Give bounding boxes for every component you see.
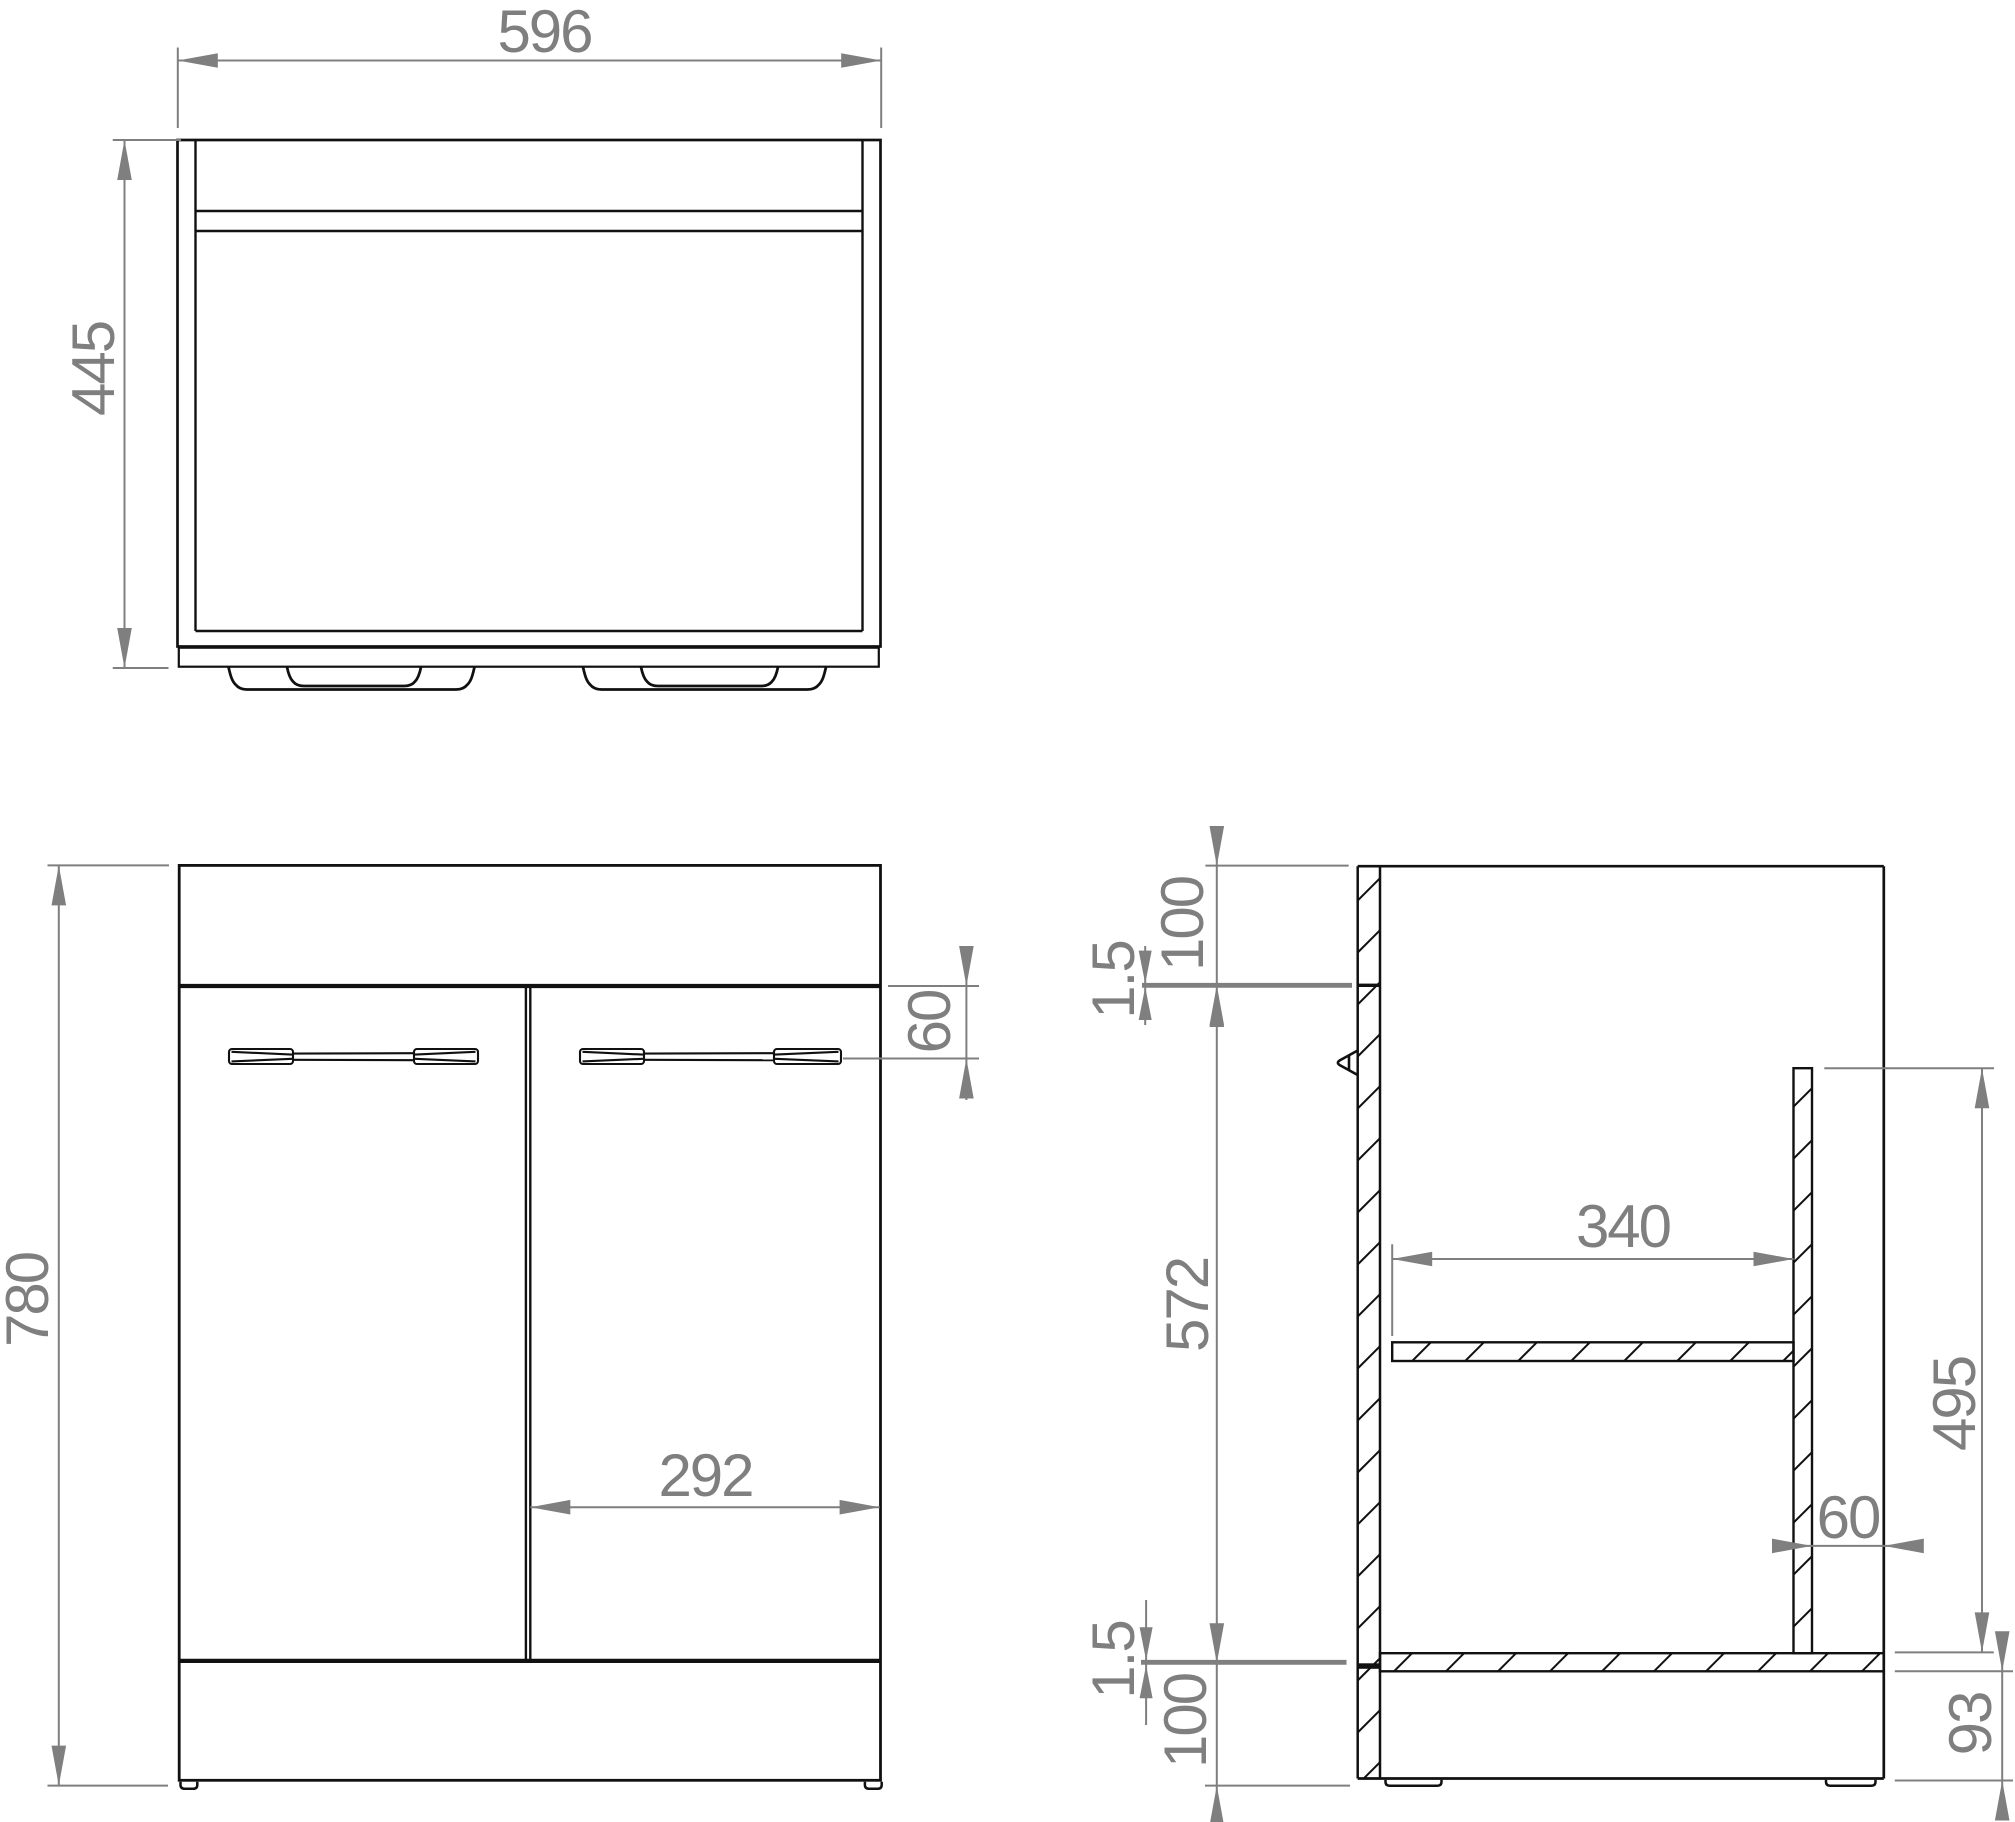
svg-text:60: 60 — [896, 990, 963, 1053]
svg-text:495: 495 — [1921, 1357, 1988, 1451]
svg-text:100: 100 — [1149, 876, 1216, 971]
svg-text:1.5: 1.5 — [1080, 1621, 1147, 1698]
svg-text:780: 780 — [0, 1252, 61, 1347]
svg-text:292: 292 — [658, 1442, 752, 1509]
svg-text:596: 596 — [497, 0, 591, 65]
svg-text:93: 93 — [1937, 1693, 2004, 1756]
svg-text:1.5: 1.5 — [1080, 941, 1147, 1018]
svg-text:445: 445 — [60, 322, 127, 416]
svg-text:60: 60 — [1817, 1484, 1880, 1551]
svg-text:100: 100 — [1152, 1673, 1219, 1768]
svg-text:572: 572 — [1154, 1258, 1221, 1352]
svg-text:340: 340 — [1576, 1193, 1671, 1260]
